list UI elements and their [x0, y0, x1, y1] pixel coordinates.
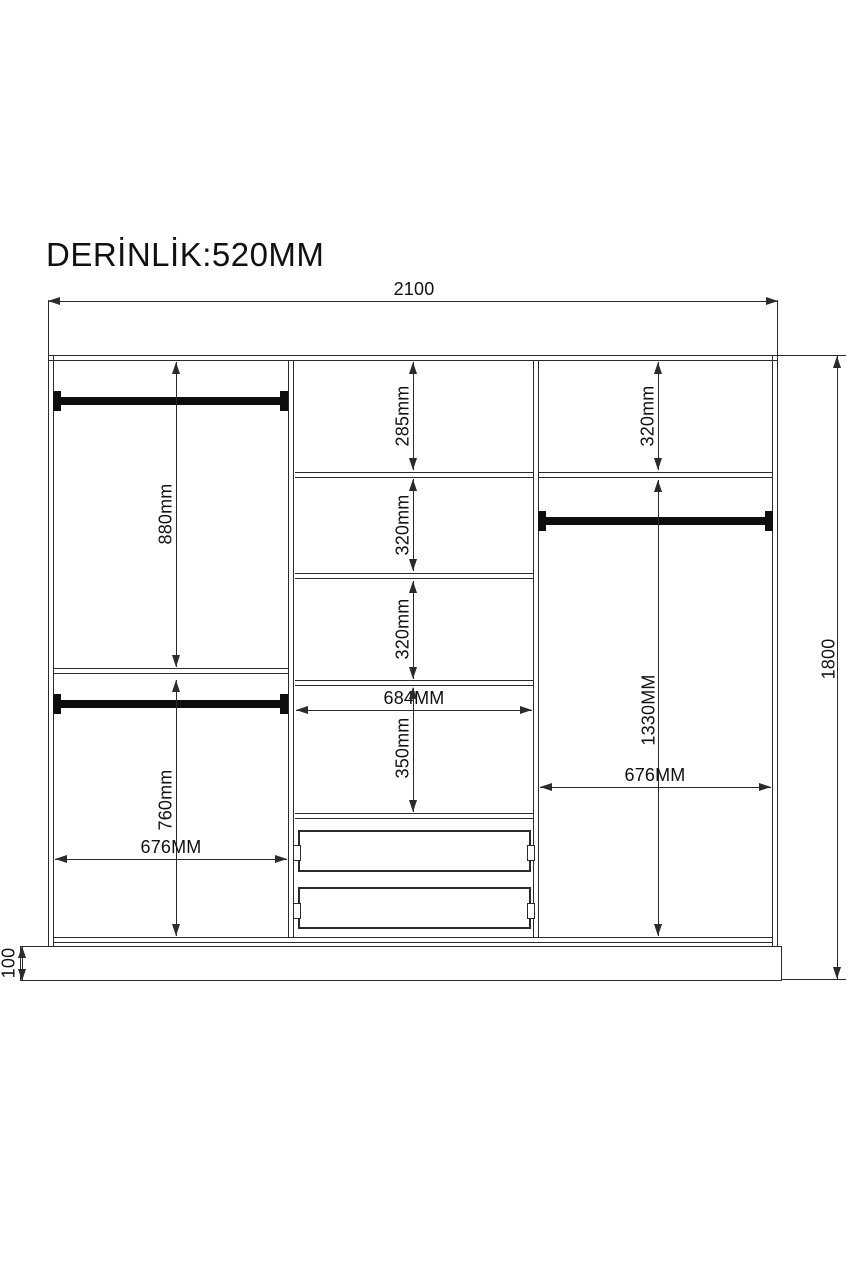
arrowhead: [55, 855, 67, 863]
dim-label-middle-4: 350mm: [393, 717, 414, 778]
arrowhead: [409, 667, 417, 679]
arrowhead: [654, 480, 662, 492]
arrowhead: [409, 581, 417, 593]
cabinet-base-plinth: [20, 946, 782, 981]
dim-label-right-top: 320mm: [638, 385, 659, 446]
dim-extension-line: [48, 300, 49, 356]
drawer-slide-clip: [293, 845, 301, 861]
wardrobe-technical-drawing: DERİNLİK:520MM 2100 1800 100: [0, 0, 853, 1280]
dim-label-left-upper: 880mm: [156, 483, 177, 544]
arrowhead: [520, 706, 532, 714]
arrowhead: [409, 362, 417, 374]
dim-label-overall-width: 2100: [394, 279, 435, 300]
arrowhead: [172, 680, 180, 692]
drawing-title: DERİNLİK:520MM: [46, 236, 324, 274]
arrowhead: [759, 783, 771, 791]
dim-label-middle-3: 320mm: [393, 598, 414, 659]
arrowhead: [48, 297, 60, 305]
cabinet-bottom-panel: [54, 937, 772, 943]
drawer-slide-clip: [527, 903, 535, 919]
arrowhead: [409, 687, 417, 699]
dim-label-left-width: 676MM: [140, 837, 201, 858]
left-upper-hanging-rod: [56, 397, 286, 405]
drawer-2: [298, 887, 531, 929]
arrowhead: [409, 458, 417, 470]
dim-label-right-hanging: 1330MM: [639, 674, 660, 745]
arrowhead: [540, 783, 552, 791]
drawer-1: [298, 830, 531, 872]
dim-label-left-lower: 760mm: [156, 769, 177, 830]
middle-shelf-1: [295, 472, 533, 478]
arrowhead: [833, 356, 841, 368]
middle-shelf-2: [295, 573, 533, 579]
cabinet-right-side-panel: [772, 355, 778, 981]
dim-label-middle-2: 320mm: [393, 494, 414, 555]
right-hanging-rod: [541, 517, 770, 525]
dim-line-left-width: [55, 859, 287, 860]
arrowhead: [409, 800, 417, 812]
arrowhead: [766, 297, 778, 305]
arrowhead: [296, 706, 308, 714]
middle-shelf-4: [295, 813, 533, 819]
arrowhead: [409, 559, 417, 571]
dim-line-right-width: [540, 787, 771, 788]
arrowhead: [172, 655, 180, 667]
arrowhead: [654, 458, 662, 470]
dim-extension-line: [782, 979, 846, 980]
dim-label-overall-height: 1800: [819, 639, 840, 680]
middle-shelf-3: [295, 680, 533, 686]
drawer-slide-clip: [527, 845, 535, 861]
dim-label-right-width: 676MM: [624, 765, 685, 786]
left-lower-hanging-rod: [56, 700, 286, 708]
dim-label-base-height: 100: [0, 948, 20, 979]
dim-line-overall-width: [48, 301, 778, 302]
arrowhead: [409, 479, 417, 491]
arrowhead: [172, 362, 180, 374]
drawer-slide-clip: [293, 903, 301, 919]
arrowhead: [172, 924, 180, 936]
arrowhead: [275, 855, 287, 863]
right-section-shelf: [539, 472, 772, 478]
arrowhead: [654, 924, 662, 936]
arrowhead: [833, 967, 841, 979]
left-section-shelf: [54, 668, 288, 674]
cabinet-top-panel: [48, 355, 778, 361]
dim-label-middle-1: 285mm: [393, 385, 414, 446]
arrowhead: [654, 362, 662, 374]
dim-extension-line: [777, 300, 778, 356]
